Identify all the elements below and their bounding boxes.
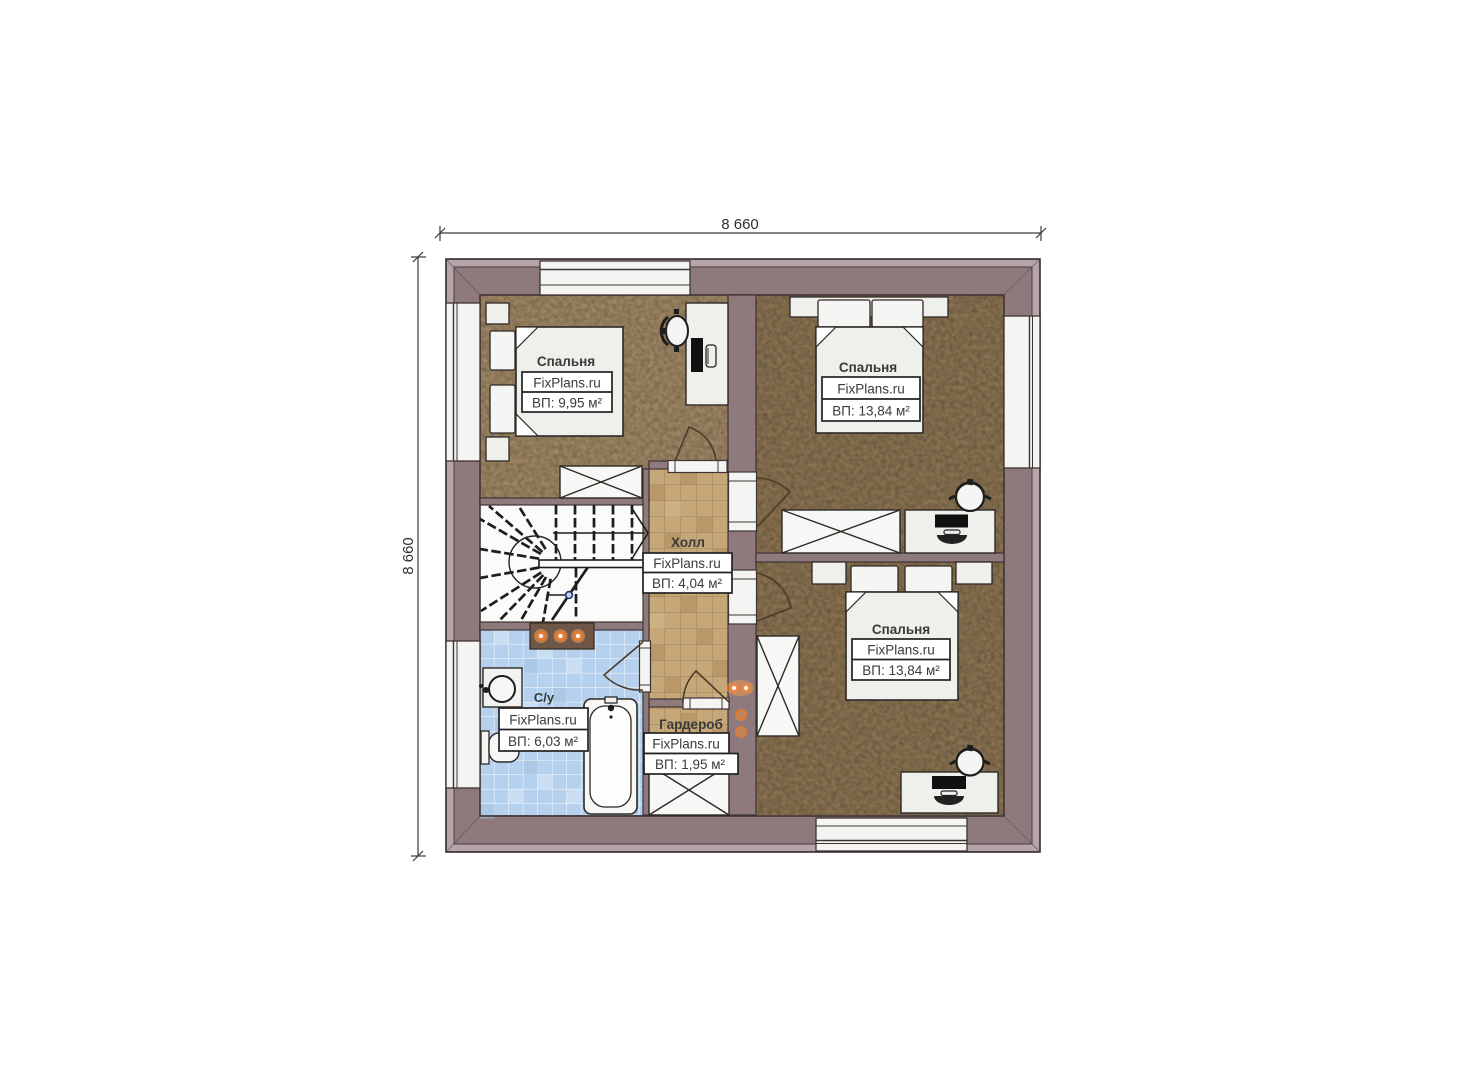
svg-text:ВП: 1,95 м²: ВП: 1,95 м² xyxy=(655,757,726,772)
svg-text:ВП: 6,03 м²: ВП: 6,03 м² xyxy=(508,734,579,749)
svg-text:Гардероб: Гардероб xyxy=(659,717,723,732)
svg-text:FixPlans.ru: FixPlans.ru xyxy=(837,382,905,397)
svg-text:ВП: 4,04 м²: ВП: 4,04 м² xyxy=(652,576,723,591)
svg-text:С/у: С/у xyxy=(534,690,555,705)
svg-text:Спальня: Спальня xyxy=(839,360,897,375)
svg-text:ВП: 13,84 м²: ВП: 13,84 м² xyxy=(832,404,910,419)
svg-text:Холл: Холл xyxy=(671,535,705,550)
svg-text:ВП: 9,95 м²: ВП: 9,95 м² xyxy=(532,396,603,411)
svg-text:ВП: 13,84 м²: ВП: 13,84 м² xyxy=(862,663,940,678)
svg-text:Спальня: Спальня xyxy=(872,622,930,637)
svg-text:FixPlans.ru: FixPlans.ru xyxy=(509,713,577,728)
svg-text:FixPlans.ru: FixPlans.ru xyxy=(653,556,721,571)
svg-text:FixPlans.ru: FixPlans.ru xyxy=(867,643,935,658)
svg-text:8 660: 8 660 xyxy=(721,216,759,233)
svg-text:FixPlans.ru: FixPlans.ru xyxy=(652,737,720,752)
svg-text:FixPlans.ru: FixPlans.ru xyxy=(533,376,601,391)
svg-text:Спальня: Спальня xyxy=(537,354,595,369)
svg-text:8 660: 8 660 xyxy=(400,537,417,575)
